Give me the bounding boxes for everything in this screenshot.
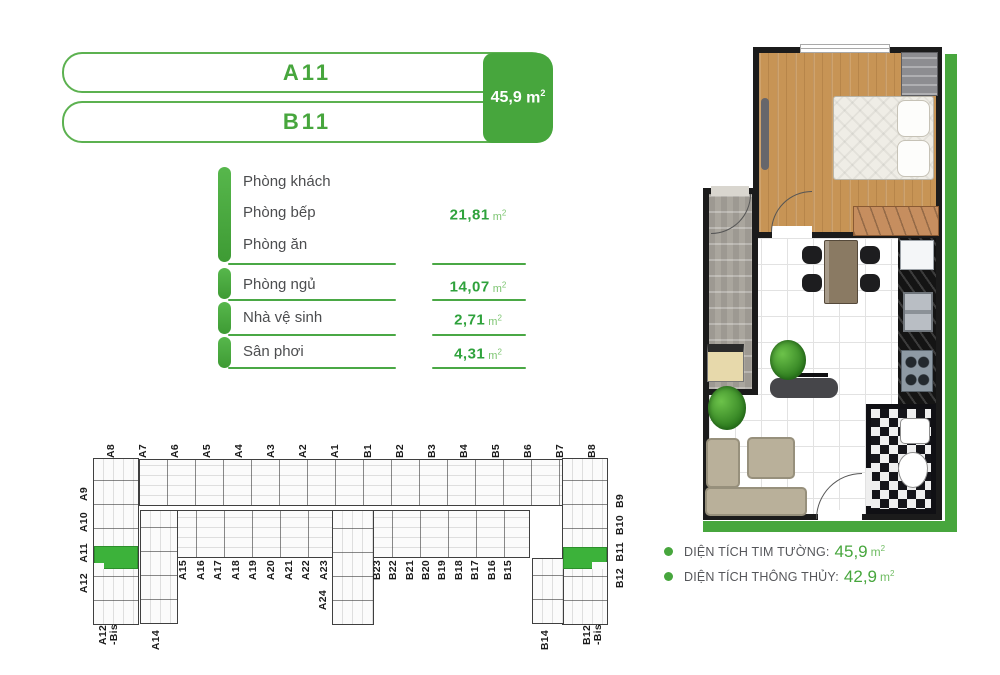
room-area-bedroom: 14,07m2 [430,275,526,295]
stove [901,350,933,392]
plant [770,340,806,380]
site-unit-label: A23 [319,560,330,580]
legend-row: DIỆN TÍCH TIM TƯỜNG: 45,9 m2 [664,541,894,562]
site-mid-labels-b: B23B22B21B20B19B18B17B16B15 [372,560,514,586]
site-unit-label: B12 [615,568,626,588]
site-unit-label: B11 [615,542,626,562]
area-badge: 45,9 m2 [483,53,553,143]
room-bar-bedroom [218,268,231,299]
room-bar-yard [218,337,231,368]
sofa [705,487,807,516]
divider [432,299,526,301]
site-unit-label: A4 [234,444,245,458]
site-a14-tower [140,510,178,624]
legend-label: DIỆN TÍCH THÔNG THỦY: [684,570,839,584]
site-unit-label: A10 [79,512,90,532]
bedroom-bench [853,206,939,236]
unit-button-a11[interactable]: A11 [62,52,552,93]
dining-chair [860,246,880,264]
pillow [897,100,930,137]
site-right-tower [562,458,608,625]
site-unit-label: B5 [491,444,502,458]
tv-console [770,378,838,398]
area-badge-value: 45,9 [491,89,522,107]
site-unit-label-b12bis: B12 -Bis [582,624,604,645]
legend-value: 42,9 [844,567,877,587]
divider [228,263,396,265]
site-unit-label: A6 [170,444,181,458]
window-mullion [800,48,890,49]
armchair [706,438,740,488]
site-unit-label: B2 [395,444,406,458]
site-unit-label: B18 [454,560,465,580]
fridge [900,240,934,270]
kitchen-sink [903,292,933,332]
site-unit-label: A21 [284,560,295,580]
site-unit-label: A9 [79,487,90,501]
site-highlight-b11-notch [592,562,607,569]
site-unit-label: B22 [388,560,399,580]
site-unit-label: A1 [330,444,341,458]
room-label-bathroom: Nhà vệ sinh [243,308,428,328]
site-unit-label: A17 [213,560,224,580]
divider [228,367,396,369]
site-unit-label-a14: A14 [151,630,162,650]
site-unit-label: B3 [427,444,438,458]
legend-label: DIỆN TÍCH TIM TƯỜNG: [684,545,830,559]
site-unit-label: A16 [196,560,207,580]
pillow [897,140,930,177]
site-unit-label-b14: B14 [540,630,551,650]
site-mid-labels-a: A15A16A17A18A19A20A21A22A23 [178,560,330,586]
site-unit-label: A22 [301,560,312,580]
legend-bullet-icon [664,547,673,556]
divider [432,367,526,369]
divider [432,334,526,336]
legend-unit: m2 [880,569,894,584]
divider [432,263,526,265]
dining-chair [802,246,822,264]
room-bar-bathroom [218,302,231,334]
unit-button-b11[interactable]: B11 [62,101,552,143]
site-unit-label: B17 [470,560,481,580]
site-unit-label: B8 [587,444,598,458]
site-unit-label: B16 [487,560,498,580]
room-label-living: Phòng khách [243,172,428,192]
site-left-labels: A9A10A11A12 [78,487,92,593]
site-unit-label: A18 [231,560,242,580]
site-unit-label: B9 [615,494,626,508]
room-group-bar [218,167,231,262]
area-badge-unit: m2 [526,88,545,107]
dining-chair [860,274,880,292]
legend-value: 45,9 [835,542,868,562]
wardrobe [901,52,938,96]
site-unit-label: A2 [298,444,309,458]
site-left-tower [93,458,139,625]
unit-b-label: B11 [283,109,331,135]
room-label-kitchen: Phòng bếp [243,203,428,223]
site-unit-label: A7 [138,444,149,458]
site-unit-label: A15 [178,560,189,580]
site-top-wing [139,459,567,506]
site-unit-label: B4 [459,444,470,458]
site-highlight-a11-notch [94,563,104,569]
site-unit-label-a12bis: A12 -Bis [98,624,120,645]
room-area-yard: 4,31m2 [430,342,526,362]
site-top-labels: A8A7A6A5A4A3A2A1B1B2B3B4B5B6B7B8 [106,434,598,458]
site-unit-label: B1 [363,444,374,458]
site-unit-label: A5 [202,444,213,458]
brochure-page: A11 B11 45,9 m2 Phòng khách Phòng bếp Ph… [0,0,1000,675]
legend-unit: m2 [871,544,885,559]
room-label-bedroom: Phòng ngủ [243,275,428,295]
legend-row: DIỆN TÍCH THÔNG THỦY: 42,9 m2 [664,566,894,587]
accent-bar-horizontal [703,521,957,532]
dining-chair [802,274,822,292]
legend-bullet-icon [664,572,673,581]
bathroom-sink [900,418,930,444]
site-unit-label: A12 [79,573,90,593]
site-unit-label: B20 [421,560,432,580]
site-unit-label: A11 [79,543,90,563]
room-area-bathroom: 2,71m2 [430,308,526,328]
room-label-yard: Sân phơi [243,342,428,362]
site-unit-label: A8 [106,444,117,458]
divider [228,334,396,336]
dining-table [824,240,858,304]
plant [708,386,746,430]
site-unit-label: A19 [248,560,259,580]
bathroom-door-gap [866,468,872,506]
loveseat [747,437,795,479]
room-label-dining: Phòng ăn [243,235,428,255]
site-right-labels: B9B10B11B12 [614,494,628,588]
site-unit-label: B23 [372,560,383,580]
hall-cabinet [707,344,744,382]
accent-bar-vertical [945,54,957,532]
site-unit-label: B10 [615,515,626,535]
site-b14-tower [532,558,564,624]
divider [228,299,396,301]
curtain [761,98,769,170]
site-unit-label: B6 [523,444,534,458]
unit-a-label: A11 [283,60,331,86]
site-unit-label: A3 [266,444,277,458]
site-unit-label: B21 [405,560,416,580]
site-unit-label: B7 [555,444,566,458]
room-area-group: 21,81m2 [430,203,526,223]
site-unit-label-a24: A24 [318,590,329,610]
site-center-block [332,510,374,625]
area-legend: DIỆN TÍCH TIM TƯỜNG: 45,9 m2 DIỆN TÍCH T… [664,541,894,587]
site-unit-label: B19 [437,560,448,580]
site-unit-label: B15 [503,560,514,580]
site-unit-label: A20 [266,560,277,580]
